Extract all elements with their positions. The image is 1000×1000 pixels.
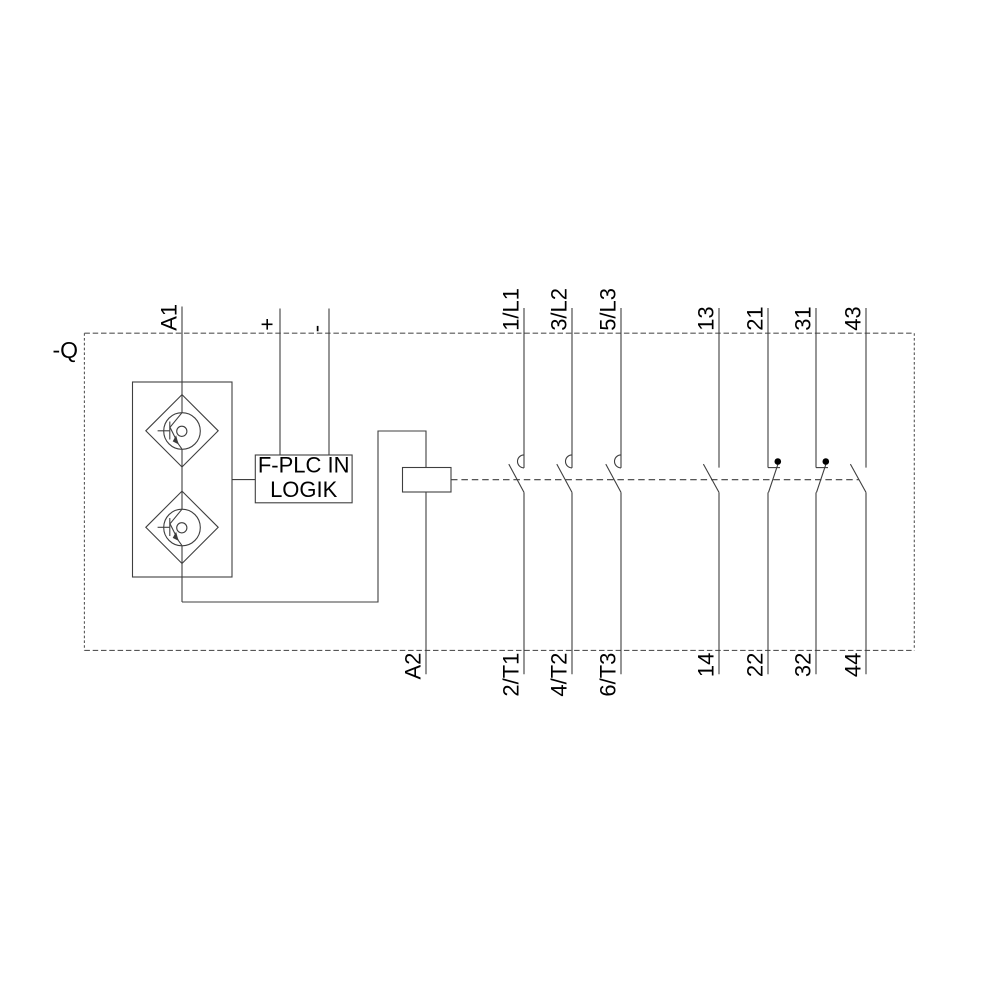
- svg-text:6/T3: 6/T3: [596, 653, 621, 697]
- svg-text:5/L3: 5/L3: [596, 288, 621, 331]
- svg-text:-: -: [304, 325, 329, 332]
- svg-text:3/L2: 3/L2: [547, 288, 572, 331]
- svg-text:13: 13: [694, 306, 719, 330]
- svg-text:32: 32: [791, 653, 816, 677]
- svg-text:LOGIK: LOGIK: [270, 477, 338, 502]
- svg-text:43: 43: [841, 306, 866, 330]
- svg-text:F-PLC IN: F-PLC IN: [258, 453, 350, 478]
- svg-text:-Q: -Q: [53, 337, 79, 363]
- svg-text:A2: A2: [401, 653, 426, 680]
- svg-text:22: 22: [743, 653, 768, 677]
- svg-text:A1: A1: [157, 304, 182, 331]
- svg-text:4/T2: 4/T2: [547, 653, 572, 697]
- svg-text:31: 31: [791, 306, 816, 330]
- svg-text:+: +: [255, 318, 280, 331]
- svg-text:14: 14: [694, 653, 719, 677]
- svg-text:44: 44: [841, 653, 866, 677]
- svg-text:21: 21: [743, 306, 768, 330]
- svg-text:1/L1: 1/L1: [499, 288, 524, 331]
- svg-text:2/T1: 2/T1: [499, 653, 524, 697]
